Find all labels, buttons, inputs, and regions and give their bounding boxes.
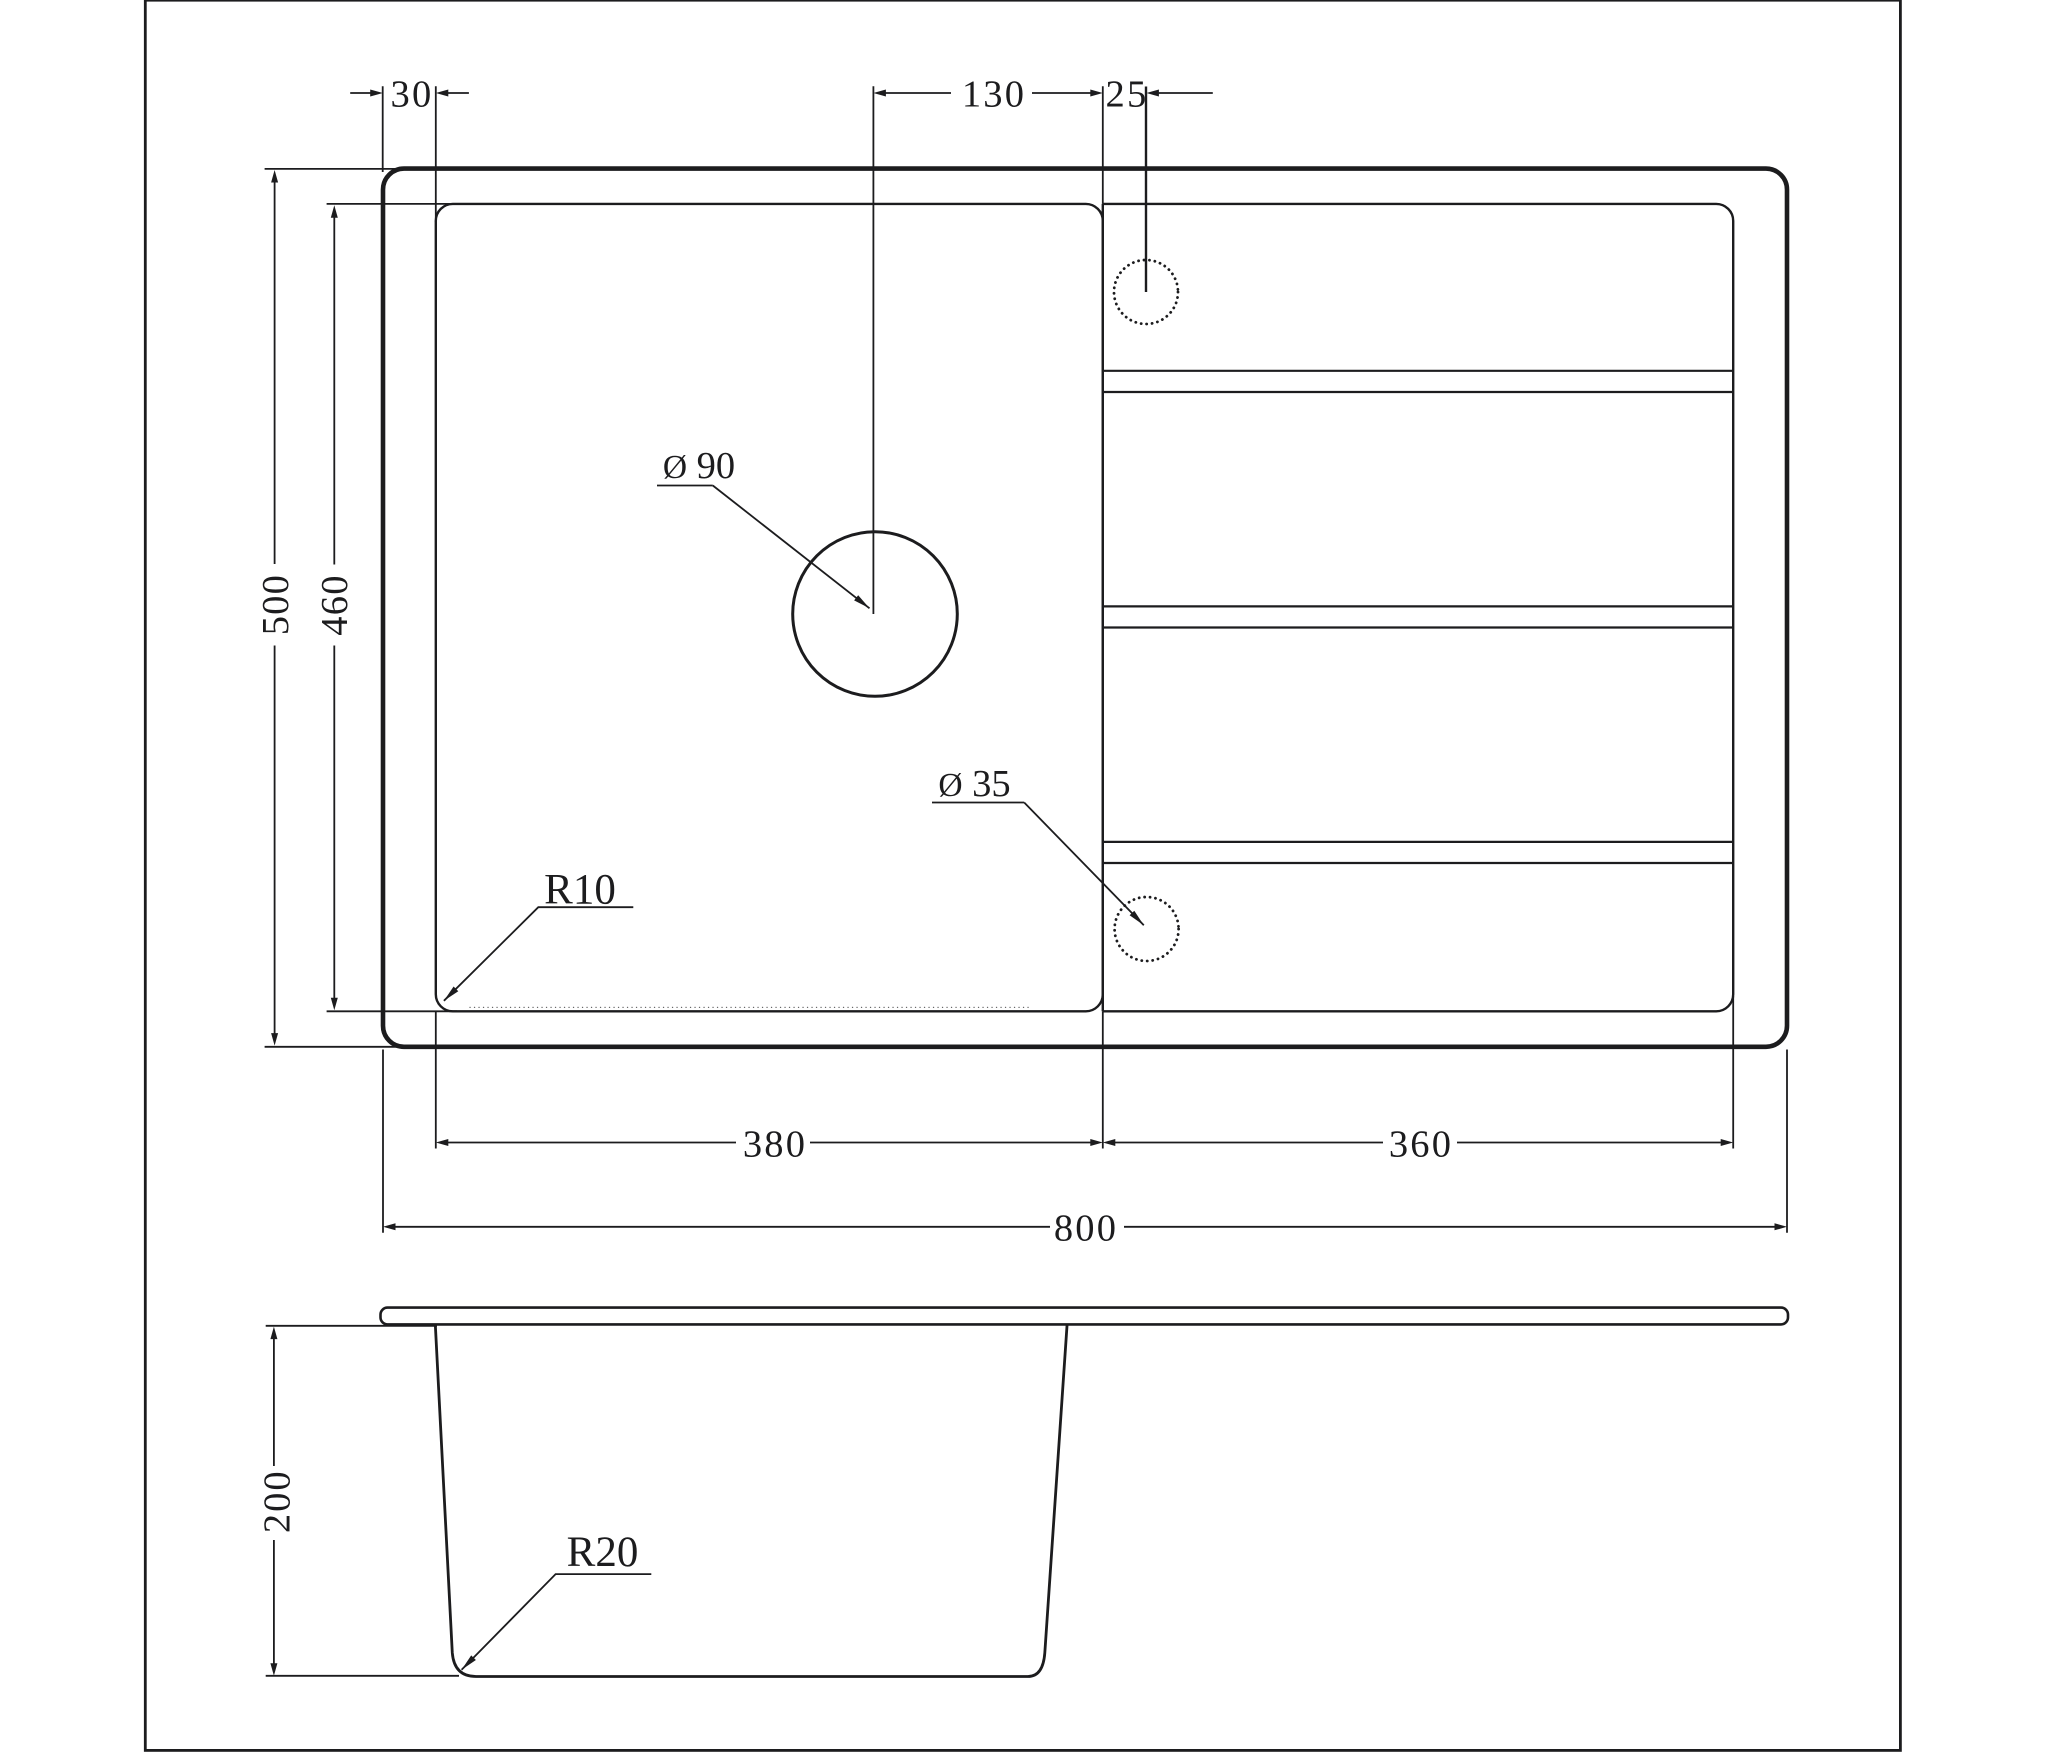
svg-text:130: 130 [962, 73, 1026, 115]
svg-text:500: 500 [255, 574, 297, 635]
svg-text:Ø 90: Ø 90 [663, 445, 735, 487]
svg-text:800: 800 [1054, 1207, 1118, 1249]
svg-text:360: 360 [1389, 1123, 1453, 1165]
svg-text:R10: R10 [544, 867, 616, 914]
svg-text:200: 200 [256, 1469, 298, 1533]
svg-text:25: 25 [1106, 73, 1149, 115]
svg-text:460: 460 [314, 574, 356, 635]
svg-text:Ø 35: Ø 35 [938, 763, 1010, 805]
svg-text:R20: R20 [567, 1529, 639, 1576]
svg-text:380: 380 [743, 1123, 807, 1165]
svg-text:30: 30 [391, 73, 434, 115]
